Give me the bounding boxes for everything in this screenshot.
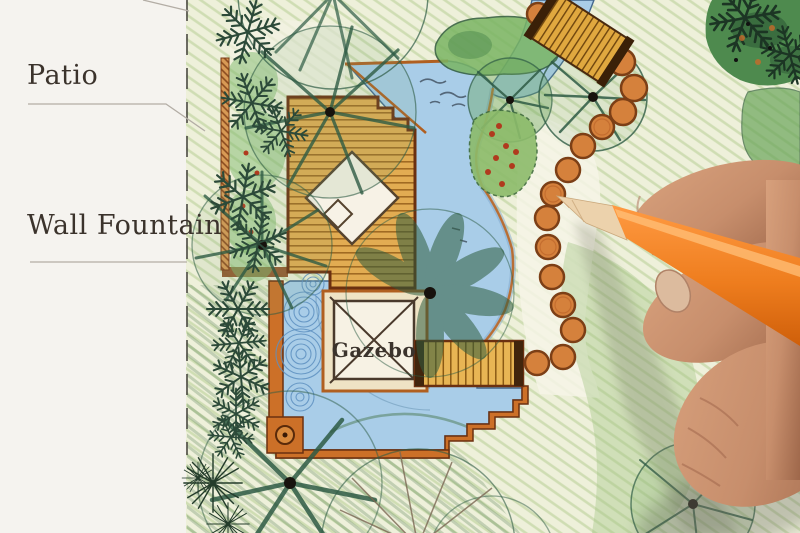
patio-label: Patio: [27, 60, 98, 91]
plan-drawing: Patio Wall Fountain Gazebo: [0, 0, 800, 533]
landscape-plan-photo: Patio Wall Fountain Gazebo: [0, 0, 800, 533]
shrub-shading: [448, 31, 492, 59]
gazebo-label: Gazebo: [332, 338, 416, 362]
wall-fountain-label: Wall Fountain: [27, 210, 222, 241]
